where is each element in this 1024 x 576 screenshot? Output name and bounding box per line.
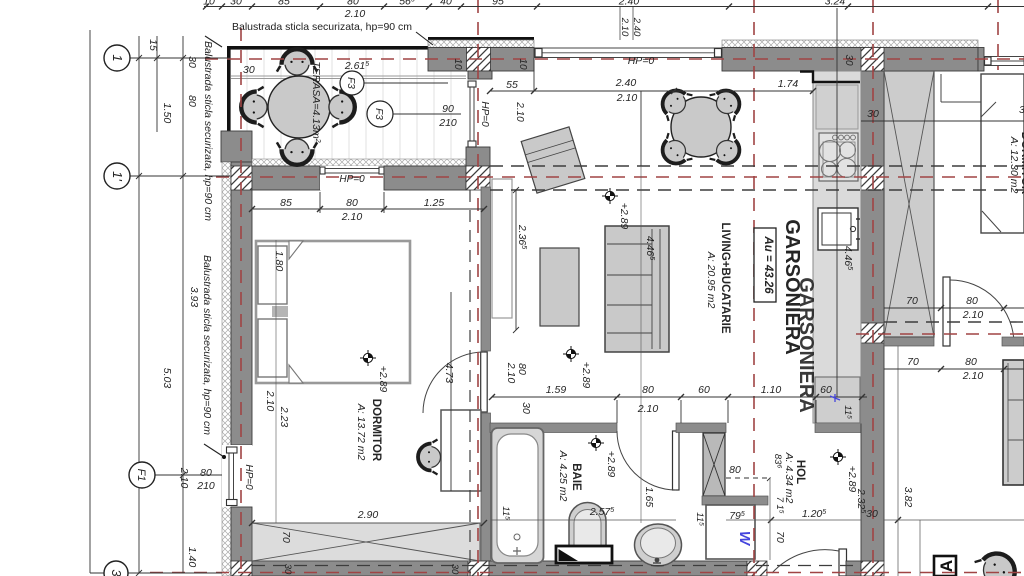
svg-text:2.40: 2.40 bbox=[631, 17, 642, 37]
svg-text:1.59: 1.59 bbox=[546, 384, 567, 396]
svg-text:60: 60 bbox=[698, 384, 710, 396]
svg-text:+2.89: +2.89 bbox=[580, 362, 592, 389]
svg-text:2.40: 2.40 bbox=[618, 0, 640, 8]
svg-text:Balustrada sticla securizata,: Balustrada sticla securizata, hp=90 cm bbox=[201, 255, 213, 435]
svg-text:30: 30 bbox=[282, 564, 293, 575]
svg-text:HP=0: HP=0 bbox=[243, 464, 254, 490]
svg-text:80: 80 bbox=[346, 197, 358, 209]
svg-text:1.50: 1.50 bbox=[161, 103, 173, 124]
svg-text:HP=0: HP=0 bbox=[339, 174, 365, 185]
svg-text:80: 80 bbox=[186, 95, 198, 107]
svg-text:F1: F1 bbox=[135, 469, 147, 482]
svg-text:70: 70 bbox=[280, 531, 292, 543]
svg-text:1.40: 1.40 bbox=[186, 547, 198, 568]
svg-text:80: 80 bbox=[642, 384, 654, 396]
svg-text:10: 10 bbox=[517, 58, 528, 70]
svg-text:2.10: 2.10 bbox=[178, 467, 190, 489]
svg-text:2.10: 2.10 bbox=[637, 403, 659, 415]
svg-text:2.10: 2.10 bbox=[505, 362, 517, 384]
svg-text:15: 15 bbox=[147, 39, 159, 51]
svg-text:30: 30 bbox=[520, 402, 532, 414]
svg-text:2.40: 2.40 bbox=[615, 77, 637, 89]
svg-text:1.65: 1.65 bbox=[643, 487, 655, 508]
svg-text:2.10: 2.10 bbox=[341, 211, 363, 223]
svg-text:10: 10 bbox=[203, 0, 215, 8]
svg-text:10: 10 bbox=[452, 58, 463, 70]
svg-text:2.10: 2.10 bbox=[962, 309, 984, 321]
svg-text:30: 30 bbox=[843, 54, 854, 66]
svg-text:+2.89: +2.89 bbox=[605, 451, 617, 478]
svg-text:F3: F3 bbox=[345, 77, 356, 89]
svg-text:HP=0: HP=0 bbox=[479, 101, 490, 127]
svg-text:210: 210 bbox=[196, 480, 215, 492]
svg-text:W: W bbox=[736, 531, 753, 547]
svg-text:30: 30 bbox=[867, 108, 879, 120]
svg-text:2.10: 2.10 bbox=[514, 101, 525, 122]
svg-text:40: 40 bbox=[440, 0, 452, 8]
svg-text:1.80: 1.80 bbox=[273, 251, 285, 272]
svg-text:Balustrada sticla securizata,: Balustrada sticla securizata, hp=90 cm bbox=[232, 21, 412, 33]
svg-text:3: 3 bbox=[1019, 104, 1024, 116]
svg-text:70: 70 bbox=[907, 356, 919, 368]
svg-text:Au = 43.26: Au = 43.26 bbox=[762, 235, 774, 294]
svg-text:80: 80 bbox=[516, 363, 528, 375]
svg-text:+2.89: +2.89 bbox=[618, 203, 630, 230]
svg-text:1': 1' bbox=[110, 171, 125, 181]
svg-text:30: 30 bbox=[186, 56, 198, 68]
svg-text:3.24: 3.24 bbox=[825, 0, 846, 8]
svg-text:A: 20.95 m2: A: 20.95 m2 bbox=[705, 251, 717, 309]
svg-text:4.73: 4.73 bbox=[443, 363, 455, 384]
svg-text:2.10: 2.10 bbox=[344, 8, 366, 20]
svg-text:90: 90 bbox=[442, 103, 454, 115]
svg-text:LIVING+BUCATARIE: LIVING+BUCATARIE bbox=[719, 222, 731, 333]
svg-text:55: 55 bbox=[506, 79, 518, 91]
svg-text:5.03: 5.03 bbox=[161, 368, 173, 389]
svg-text:A: 13.72 m2: A: 13.72 m2 bbox=[355, 403, 367, 461]
svg-text:2.10: 2.10 bbox=[619, 17, 630, 37]
svg-text:80: 80 bbox=[200, 467, 212, 479]
svg-text:2.10: 2.10 bbox=[616, 92, 638, 104]
svg-text:2.23: 2.23 bbox=[278, 406, 290, 428]
svg-text:30: 30 bbox=[866, 508, 878, 520]
svg-text:GARSONIERA: GARSONIERA bbox=[795, 277, 817, 413]
svg-text:BAIE: BAIE bbox=[570, 463, 582, 491]
svg-text:1: 1 bbox=[110, 54, 125, 61]
svg-text:A: 12.30 m2: A: 12.30 m2 bbox=[1008, 136, 1020, 194]
svg-text:60: 60 bbox=[820, 384, 832, 396]
svg-text:95: 95 bbox=[492, 0, 504, 8]
svg-text:DORMITOR: DORMITOR bbox=[370, 399, 382, 462]
svg-text:Balustrada sticla securizata,: Balustrada sticla securizata, hp=90 cm bbox=[202, 41, 214, 221]
svg-text:30: 30 bbox=[243, 64, 255, 76]
svg-text:30: 30 bbox=[230, 0, 242, 8]
svg-text:30: 30 bbox=[449, 564, 460, 575]
svg-text:1.25: 1.25 bbox=[424, 197, 445, 209]
svg-text:85: 85 bbox=[280, 197, 292, 209]
svg-text:80: 80 bbox=[965, 356, 977, 368]
svg-text:A: A bbox=[937, 560, 956, 572]
svg-text:A: 4.25 m2: A: 4.25 m2 bbox=[557, 450, 569, 502]
svg-text:3.82: 3.82 bbox=[902, 487, 914, 508]
svg-text:HP=0: HP=0 bbox=[628, 55, 655, 67]
svg-text:TERASA=4.13m2: TERASA=4.13m2 bbox=[310, 61, 322, 142]
svg-text:F3: F3 bbox=[373, 108, 384, 120]
svg-text:85: 85 bbox=[278, 0, 290, 8]
svg-text:2.10: 2.10 bbox=[962, 370, 984, 382]
svg-text:70: 70 bbox=[906, 295, 918, 307]
svg-text:2.10: 2.10 bbox=[264, 390, 276, 412]
svg-text:80: 80 bbox=[729, 464, 741, 476]
svg-text:70: 70 bbox=[774, 531, 786, 543]
svg-text:80: 80 bbox=[347, 0, 359, 8]
svg-text:80: 80 bbox=[966, 295, 978, 307]
svg-text:1.10: 1.10 bbox=[761, 384, 782, 396]
svg-text:+2.89: +2.89 bbox=[377, 366, 389, 393]
svg-text:3.93: 3.93 bbox=[188, 287, 200, 308]
svg-text:210: 210 bbox=[438, 117, 457, 129]
svg-text:2.90: 2.90 bbox=[357, 509, 379, 521]
svg-text:3: 3 bbox=[109, 569, 124, 576]
svg-text:1.74: 1.74 bbox=[778, 78, 799, 90]
